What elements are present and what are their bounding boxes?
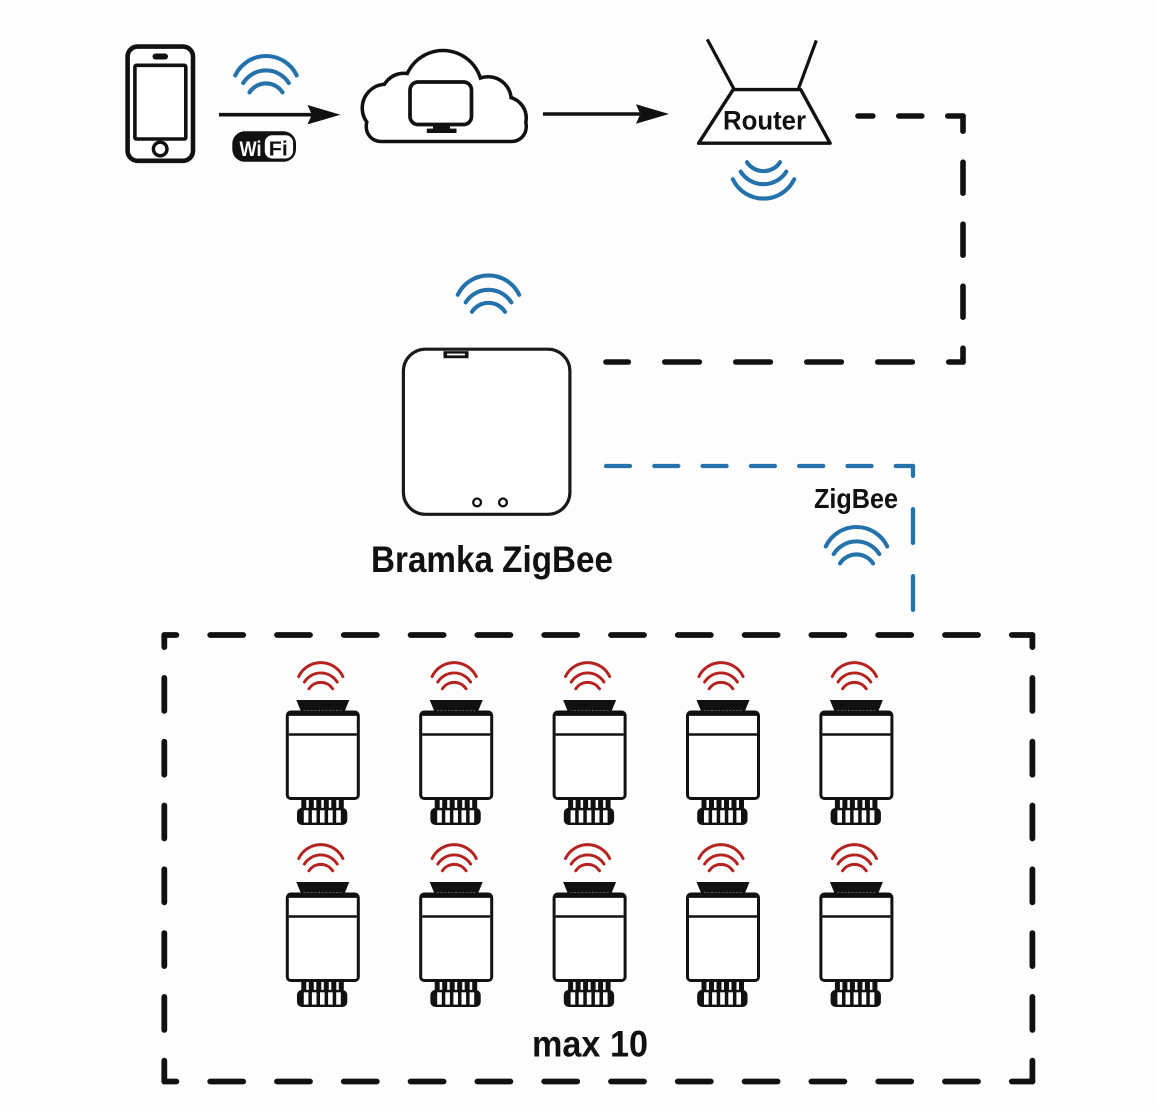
svg-text:Bramka ZigBee: Bramka ZigBee	[371, 538, 613, 580]
svg-text:Fi: Fi	[269, 138, 288, 160]
svg-text:Router: Router	[723, 106, 806, 136]
svg-text:max 10: max 10	[532, 1024, 648, 1065]
svg-text:Wi: Wi	[240, 138, 262, 161]
svg-text:ZigBee: ZigBee	[814, 483, 898, 514]
